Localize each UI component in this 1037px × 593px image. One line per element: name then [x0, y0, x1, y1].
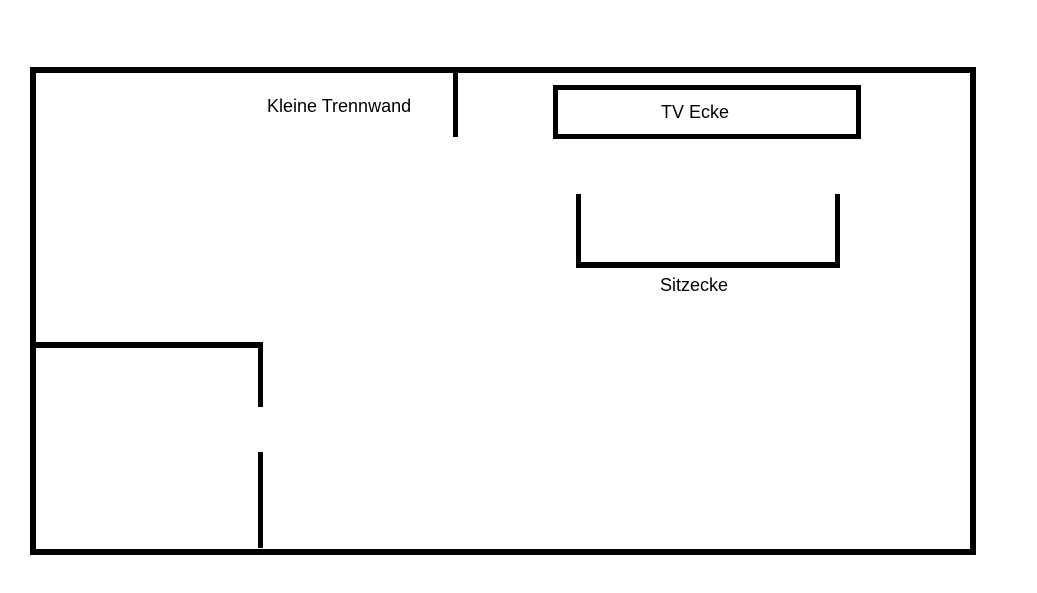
floor-plan-canvas: Kleine Trennwand TV Ecke Sitzecke	[0, 0, 1037, 593]
partition-label: Kleine Trennwand	[267, 95, 411, 117]
tv-area-box: TV Ecke	[553, 85, 861, 139]
seating-area-label: Sitzecke	[660, 274, 728, 296]
small-room-right-wall-lower	[258, 452, 263, 548]
tv-area-label: TV Ecke	[661, 102, 729, 123]
partition-wall	[453, 73, 458, 137]
small-room-top-wall	[30, 342, 263, 348]
seating-area-outline	[576, 194, 840, 268]
small-room-right-wall-upper	[258, 342, 263, 407]
room-outline	[30, 67, 976, 555]
